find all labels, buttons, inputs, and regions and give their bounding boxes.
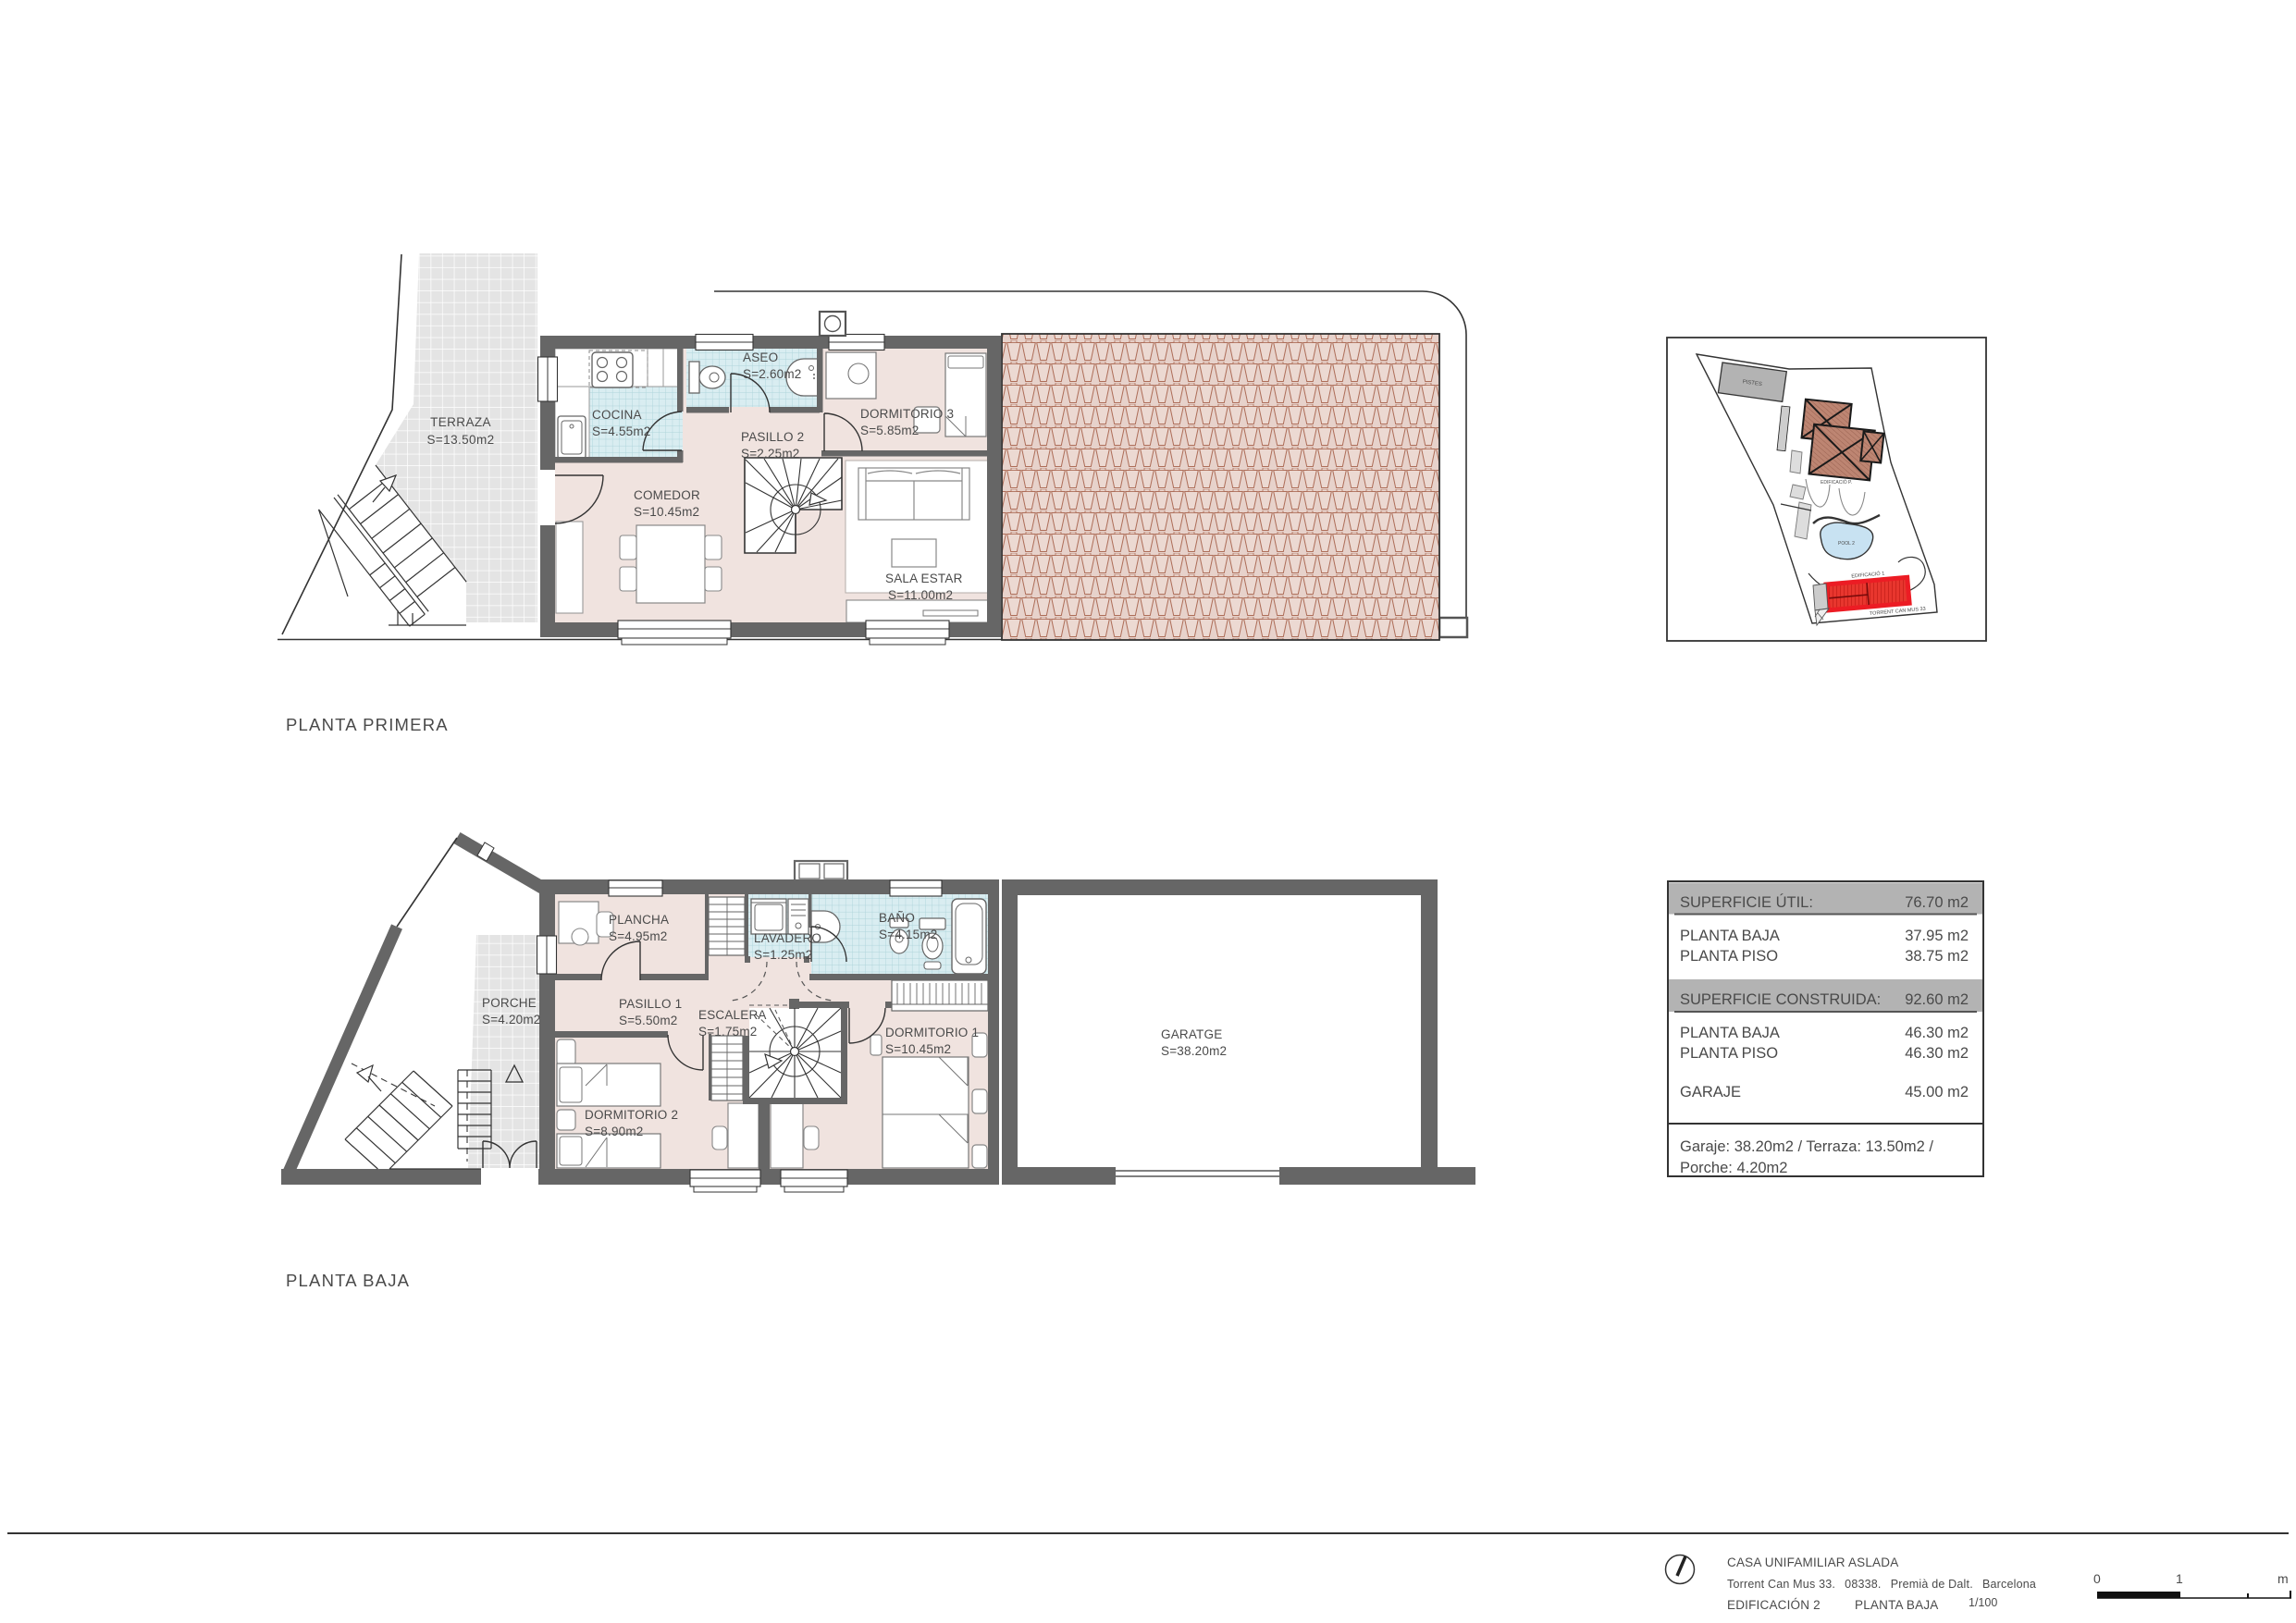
svg-text:46.30 m2: 46.30 m2	[1905, 1025, 1969, 1041]
svg-text:76.70 m2: 76.70 m2	[1905, 894, 1969, 911]
svg-text:m: m	[2277, 1571, 2289, 1586]
svg-text:S=5.85m2: S=5.85m2	[860, 424, 920, 437]
svg-text:Torrent Can Mus 33. 08338. P: Torrent Can Mus 33. 08338. Premià de Dal…	[1727, 1578, 2036, 1591]
svg-text:ASEO: ASEO	[743, 350, 778, 364]
svg-text:S=2.60m2: S=2.60m2	[743, 367, 802, 381]
svg-text:PLANTA PRIMERA: PLANTA PRIMERA	[286, 715, 449, 734]
svg-text:46.30 m2: 46.30 m2	[1905, 1045, 1969, 1062]
svg-text:S=4.20m2: S=4.20m2	[482, 1013, 541, 1027]
svg-text:1/100: 1/100	[1969, 1596, 1997, 1609]
svg-text:CASA UNIFAMILIAR ASLADA: CASA UNIFAMILIAR ASLADA	[1727, 1555, 1898, 1569]
svg-text:SUPERFICIE ÚTIL:: SUPERFICIE ÚTIL:	[1680, 893, 1813, 911]
svg-text:DORMITORIO 3: DORMITORIO 3	[860, 407, 954, 421]
svg-text:DORMITORIO 1: DORMITORIO 1	[885, 1026, 979, 1039]
svg-text:Porche: 4.20m2: Porche: 4.20m2	[1680, 1160, 1787, 1176]
svg-text:BAÑO: BAÑO	[879, 911, 915, 925]
svg-text:S=38.20m2: S=38.20m2	[1161, 1044, 1227, 1058]
svg-text:S=4.15m2: S=4.15m2	[879, 928, 938, 941]
svg-text:DORMITORIO 2: DORMITORIO 2	[585, 1108, 678, 1122]
svg-text:PLANTA BAJA: PLANTA BAJA	[1855, 1598, 1938, 1612]
svg-text:S=11.00m2: S=11.00m2	[888, 588, 953, 602]
svg-text:38.75 m2: 38.75 m2	[1905, 948, 1969, 965]
svg-text:0: 0	[2093, 1571, 2101, 1586]
svg-text:S=4.95m2: S=4.95m2	[609, 929, 668, 943]
svg-text:LAVADERO: LAVADERO	[754, 931, 821, 945]
svg-text:PLANTA PISO: PLANTA PISO	[1680, 948, 1778, 965]
svg-text:S=4.55m2: S=4.55m2	[592, 424, 651, 438]
svg-text:S=1.25m2: S=1.25m2	[754, 948, 813, 962]
svg-text:ESCALERA: ESCALERA	[698, 1008, 767, 1022]
svg-text:COMEDOR: COMEDOR	[634, 488, 700, 502]
svg-text:S=5.50m2: S=5.50m2	[619, 1014, 678, 1027]
svg-text:SALA ESTAR: SALA ESTAR	[885, 572, 963, 585]
svg-text:S=13.50m2: S=13.50m2	[426, 433, 494, 447]
svg-text:PLANTA BAJA: PLANTA BAJA	[286, 1271, 410, 1290]
svg-text:GARATGE: GARATGE	[1161, 1027, 1222, 1041]
svg-text:PLANCHA: PLANCHA	[609, 913, 669, 927]
svg-text:1: 1	[2176, 1571, 2183, 1586]
svg-text:EDIFICACIÓN 2: EDIFICACIÓN 2	[1727, 1598, 1821, 1612]
svg-text:S=2.25m2: S=2.25m2	[741, 447, 800, 461]
svg-text:PLANTA BAJA: PLANTA BAJA	[1680, 1025, 1780, 1041]
svg-text:PLANTA BAJA: PLANTA BAJA	[1680, 928, 1780, 944]
svg-text:S=1.75m2: S=1.75m2	[698, 1025, 758, 1039]
svg-text:S=8.90m2: S=8.90m2	[585, 1125, 644, 1138]
svg-text:45.00 m2: 45.00 m2	[1905, 1084, 1969, 1100]
svg-text:S=10.45m2: S=10.45m2	[885, 1042, 951, 1056]
svg-text:SUPERFICIE CONSTRUIDA:: SUPERFICIE CONSTRUIDA:	[1680, 991, 1881, 1008]
svg-text:Garaje: 38.20m2 / Terraza: 13.: Garaje: 38.20m2 / Terraza: 13.50m2 /	[1680, 1138, 1933, 1155]
svg-text:TERRAZA: TERRAZA	[430, 415, 491, 429]
svg-text:PLANTA PISO: PLANTA PISO	[1680, 1045, 1778, 1062]
svg-text:PASILLO 2: PASILLO 2	[741, 430, 804, 444]
svg-text:S=10.45m2: S=10.45m2	[634, 505, 699, 519]
svg-text:EDIFICACIÓ P.: EDIFICACIÓ P.	[1821, 479, 1852, 486]
svg-text:COCINA: COCINA	[592, 408, 642, 422]
svg-text:92.60 m2: 92.60 m2	[1905, 991, 1969, 1008]
svg-text:PASILLO 1: PASILLO 1	[619, 997, 682, 1011]
svg-text:POOL 2: POOL 2	[1838, 541, 1855, 547]
svg-text:GARAJE: GARAJE	[1680, 1084, 1741, 1100]
svg-text:PORCHE: PORCHE	[482, 996, 537, 1010]
svg-text:37.95 m2: 37.95 m2	[1905, 928, 1969, 944]
